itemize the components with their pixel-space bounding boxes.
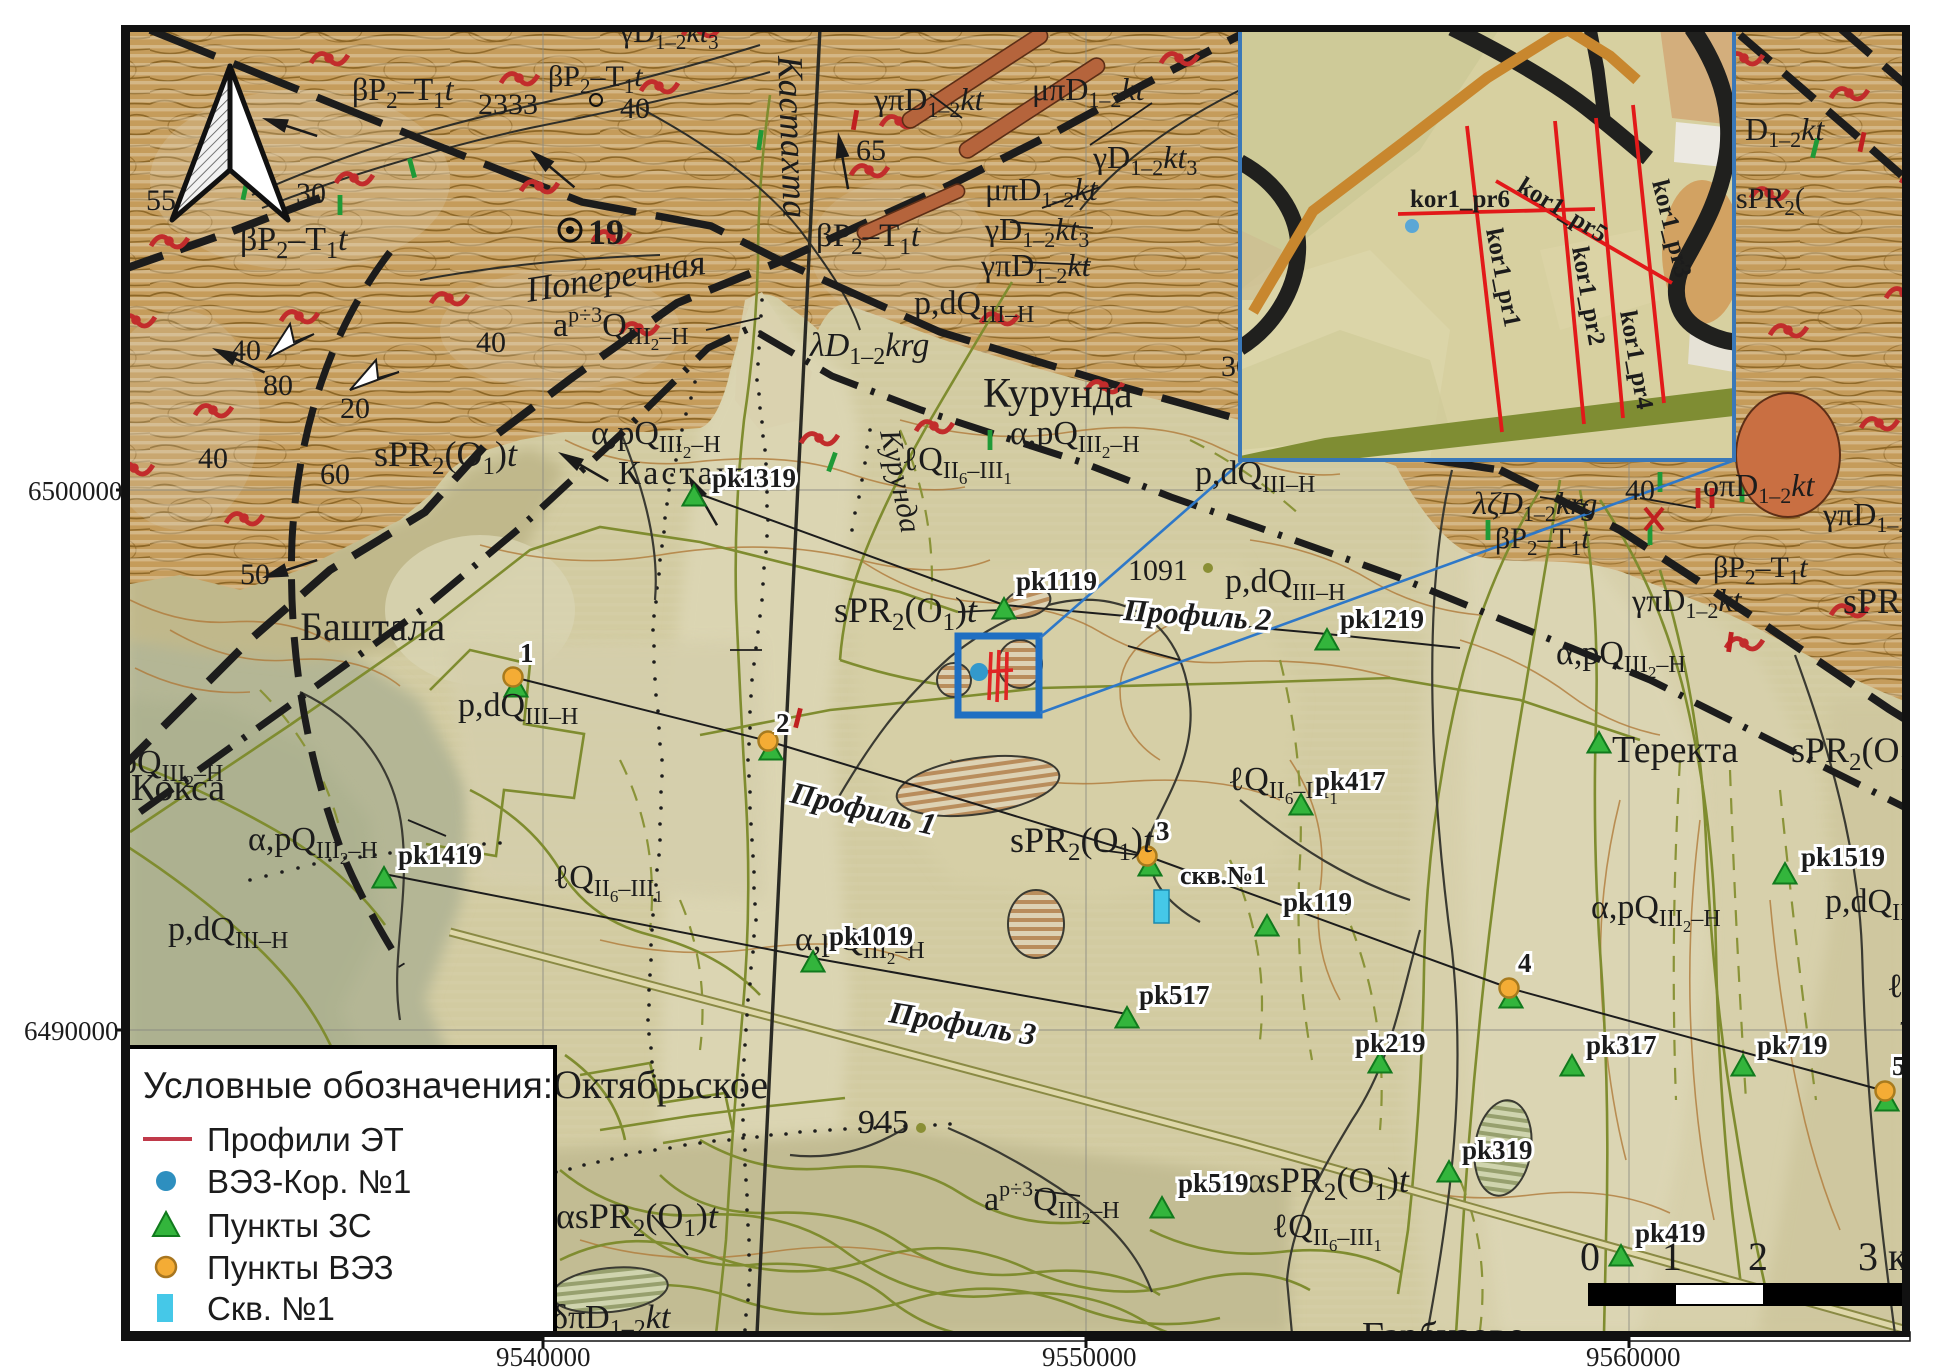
svg-text:Пункты ВЭЗ: Пункты ВЭЗ	[207, 1249, 394, 1286]
svg-text:pk1119: pk1119	[1016, 566, 1097, 596]
svg-text:pk1519: pk1519	[1801, 842, 1885, 872]
svg-text:Баштала: Баштала	[300, 604, 446, 649]
svg-text:pk719: pk719	[1757, 1030, 1828, 1060]
svg-text:1091: 1091	[1128, 554, 1188, 587]
svg-text:1: 1	[1662, 1234, 1682, 1279]
svg-text:60: 60	[320, 458, 350, 491]
svg-text:ВЭЗ-Кор. №1: ВЭЗ-Кор. №1	[207, 1163, 411, 1200]
svg-text:2333: 2333	[478, 88, 538, 121]
svg-text:pk119: pk119	[1283, 887, 1352, 917]
svg-text:9560000: 9560000	[1586, 1342, 1681, 1370]
svg-text:Профили ЭТ: Профили ЭТ	[207, 1121, 404, 1158]
svg-text:kor1_pr6: kor1_pr6	[1410, 186, 1510, 213]
svg-text:скв.№1: скв.№1	[1180, 861, 1266, 890]
svg-text:sPR2(O1)t: sPR2(O1)t	[834, 590, 978, 636]
svg-text:80: 80	[263, 369, 293, 402]
svg-text:9540000: 9540000	[496, 1342, 591, 1370]
svg-text:pk1419: pk1419	[398, 840, 482, 870]
svg-text:19: 19	[588, 212, 624, 252]
svg-text:40: 40	[231, 334, 261, 367]
svg-text:pk1319: pk1319	[712, 463, 796, 493]
svg-text:0: 0	[1580, 1234, 1600, 1279]
svg-text:9550000: 9550000	[1042, 1342, 1137, 1370]
svg-text:pk317: pk317	[1586, 1030, 1657, 1060]
svg-text:Теректа: Теректа	[1612, 729, 1739, 771]
svg-text:Кастахта: Кастахта	[770, 54, 816, 219]
svg-text:40: 40	[620, 92, 650, 125]
svg-text:sPR2(O1)t: sPR2(O1)t	[1010, 820, 1154, 866]
svg-text:4: 4	[1518, 948, 1532, 978]
svg-text:pk519: pk519	[1178, 1168, 1249, 1198]
svg-text:Кокса: Кокса	[131, 767, 225, 809]
svg-text:sPR2(: sPR2(	[1736, 182, 1805, 220]
svg-text:40: 40	[198, 442, 228, 475]
svg-text:pk319: pk319	[1462, 1135, 1533, 1165]
svg-text:pk417: pk417	[1315, 766, 1386, 796]
svg-text:2: 2	[1748, 1234, 1768, 1279]
svg-text:6490000: 6490000	[24, 1016, 119, 1046]
svg-text:945: 945	[858, 1104, 909, 1141]
svg-text:pk219: pk219	[1355, 1028, 1426, 1058]
svg-text:40: 40	[476, 326, 506, 359]
svg-text:6500000: 6500000	[28, 476, 123, 506]
svg-text:Октябрьское: Октябрьское	[553, 1062, 768, 1107]
svg-text:Условные обозначения:: Условные обозначения:	[143, 1065, 553, 1106]
svg-text:65: 65	[856, 134, 886, 167]
svg-text:3: 3	[1156, 816, 1170, 846]
svg-text:pk517: pk517	[1139, 980, 1210, 1010]
svg-text:Скв. №1: Скв. №1	[207, 1290, 335, 1327]
svg-text:Пункты ЗС: Пункты ЗС	[207, 1207, 372, 1244]
svg-text:50: 50	[240, 558, 270, 591]
svg-text:pk1219: pk1219	[1340, 604, 1424, 634]
svg-text:55: 55	[146, 184, 176, 217]
svg-text:sPR2(O1)t: sPR2(O1)t	[374, 434, 518, 480]
svg-text:Курунда: Курунда	[983, 371, 1133, 417]
svg-text:30: 30	[296, 177, 326, 210]
svg-text:20: 20	[340, 392, 370, 425]
svg-text:40: 40	[1625, 474, 1655, 507]
svg-text:pk1019: pk1019	[829, 921, 913, 951]
svg-text:1: 1	[520, 638, 534, 668]
svg-text:2: 2	[776, 708, 790, 738]
